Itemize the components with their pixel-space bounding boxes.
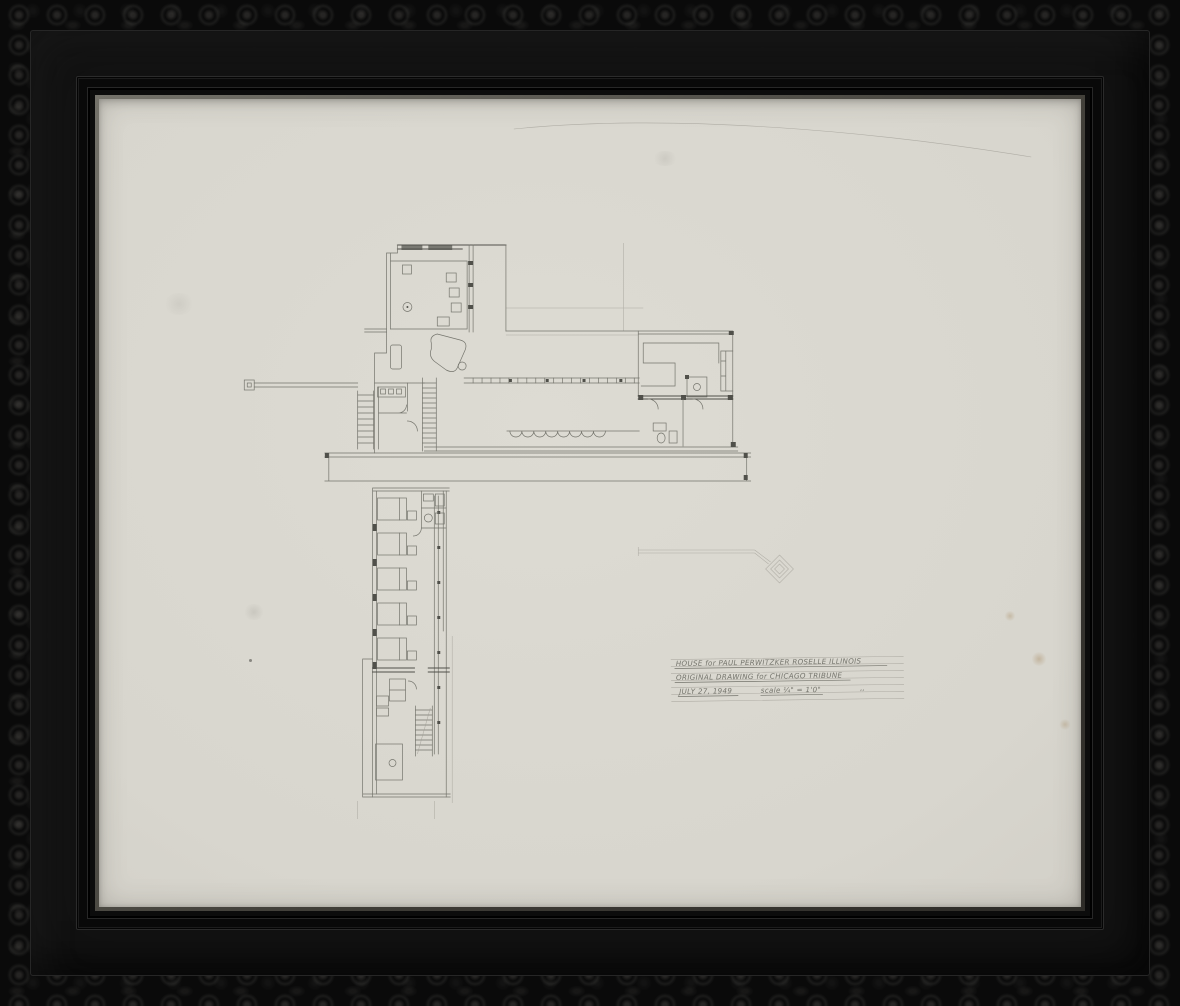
paper-crease [506, 123, 1031, 331]
garden-wall-left [244, 380, 357, 390]
terrace-band [325, 453, 751, 481]
drawing-paper: HOUSE for PAUL PERWITZKER ROSELLE ILLINO… [99, 99, 1081, 907]
framed-floor-plan-photo: HOUSE for PAUL PERWITZKER ROSELLE ILLINO… [0, 0, 1180, 1006]
bedroom-wing [358, 488, 453, 819]
title-block: HOUSE for PAUL PERWITZKER ROSELLE ILLINO… [671, 656, 904, 702]
main-wing [422, 331, 737, 451]
ditto-mark: ,, [860, 684, 865, 692]
garden-wall-diamond [638, 547, 793, 583]
right-block [638, 331, 736, 447]
kitchen-block [358, 383, 425, 453]
title-line-3-date: JULY 27, 1949 [677, 686, 732, 696]
studio-room [365, 245, 506, 383]
bed-row [378, 498, 417, 660]
floor-plan-svg: HOUSE for PAUL PERWITZKER ROSELLE ILLINO… [99, 99, 1081, 907]
paper-speck [249, 659, 252, 662]
title-line-3-scale: scale ¼" = 1'0" [761, 685, 821, 695]
